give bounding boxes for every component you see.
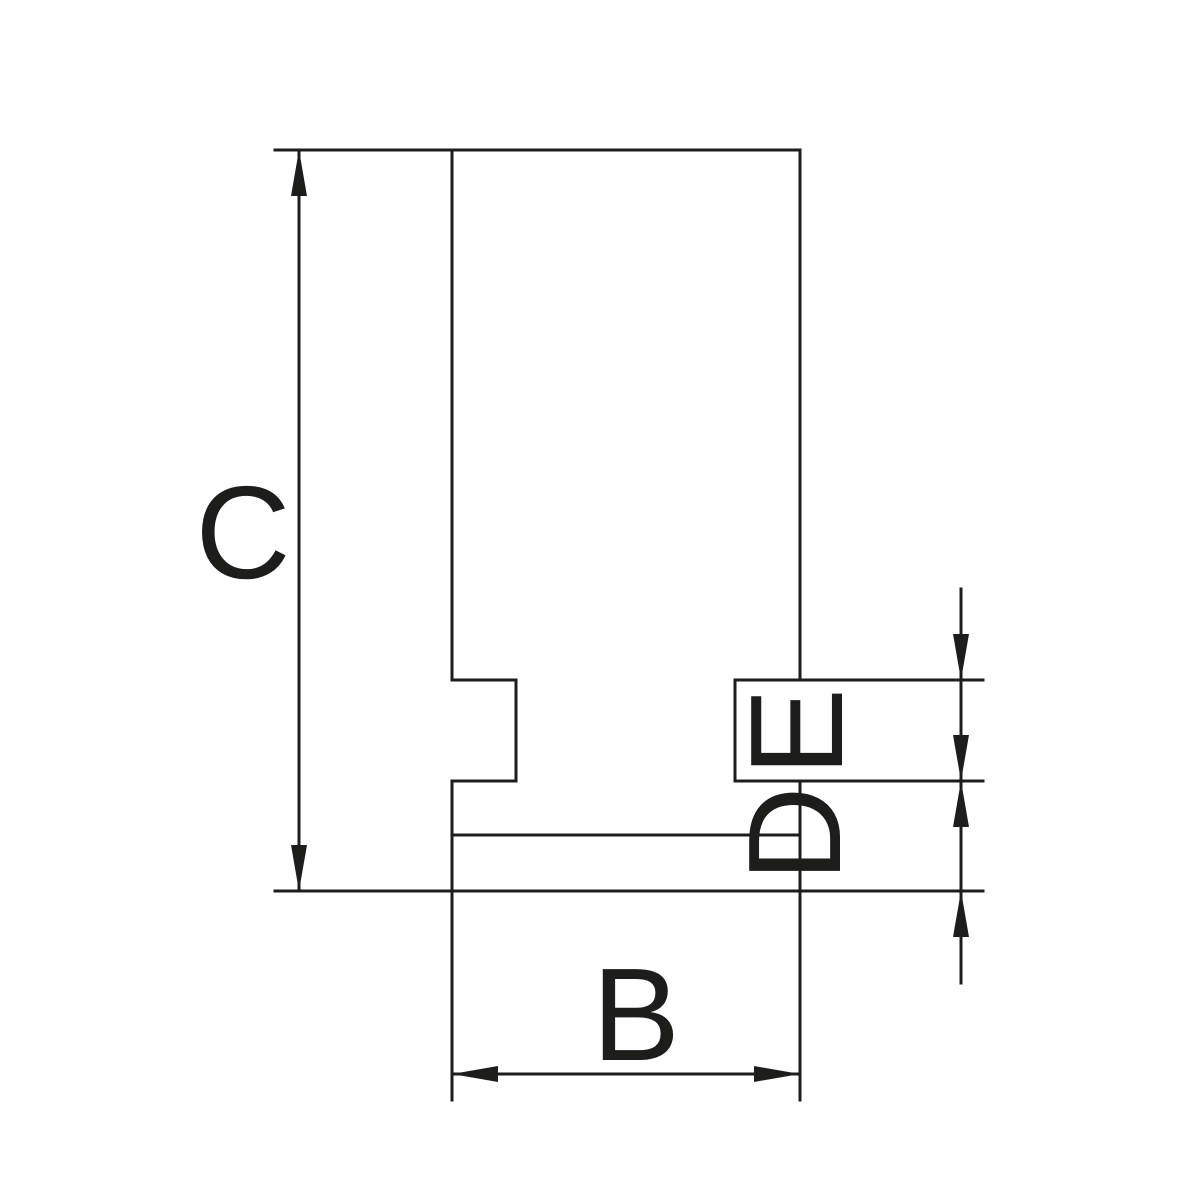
d-dim-bottom-arrowhead <box>953 891 969 937</box>
b-dim-left-arrowhead <box>452 1066 498 1082</box>
dimension-label-d: D <box>721 786 868 881</box>
dimension-label-e: E <box>723 688 870 776</box>
dimension-label-b: B <box>592 941 680 1088</box>
e-dim-bottom-arrowhead <box>953 781 969 827</box>
c-dim-bottom-arrowhead <box>291 845 307 891</box>
jaw-cross-section-drawing: C B E D <box>0 0 1200 1200</box>
d-dim-top-arrowhead <box>953 735 969 781</box>
e-dim-top-arrowhead <box>953 634 969 680</box>
technical-drawing-page: C B E D <box>0 0 1200 1200</box>
dimension-label-c: C <box>195 459 290 606</box>
b-dim-right-arrowhead <box>754 1066 800 1082</box>
drawing-fills: C B E D <box>195 150 969 1088</box>
c-dim-top-arrowhead <box>291 150 307 196</box>
